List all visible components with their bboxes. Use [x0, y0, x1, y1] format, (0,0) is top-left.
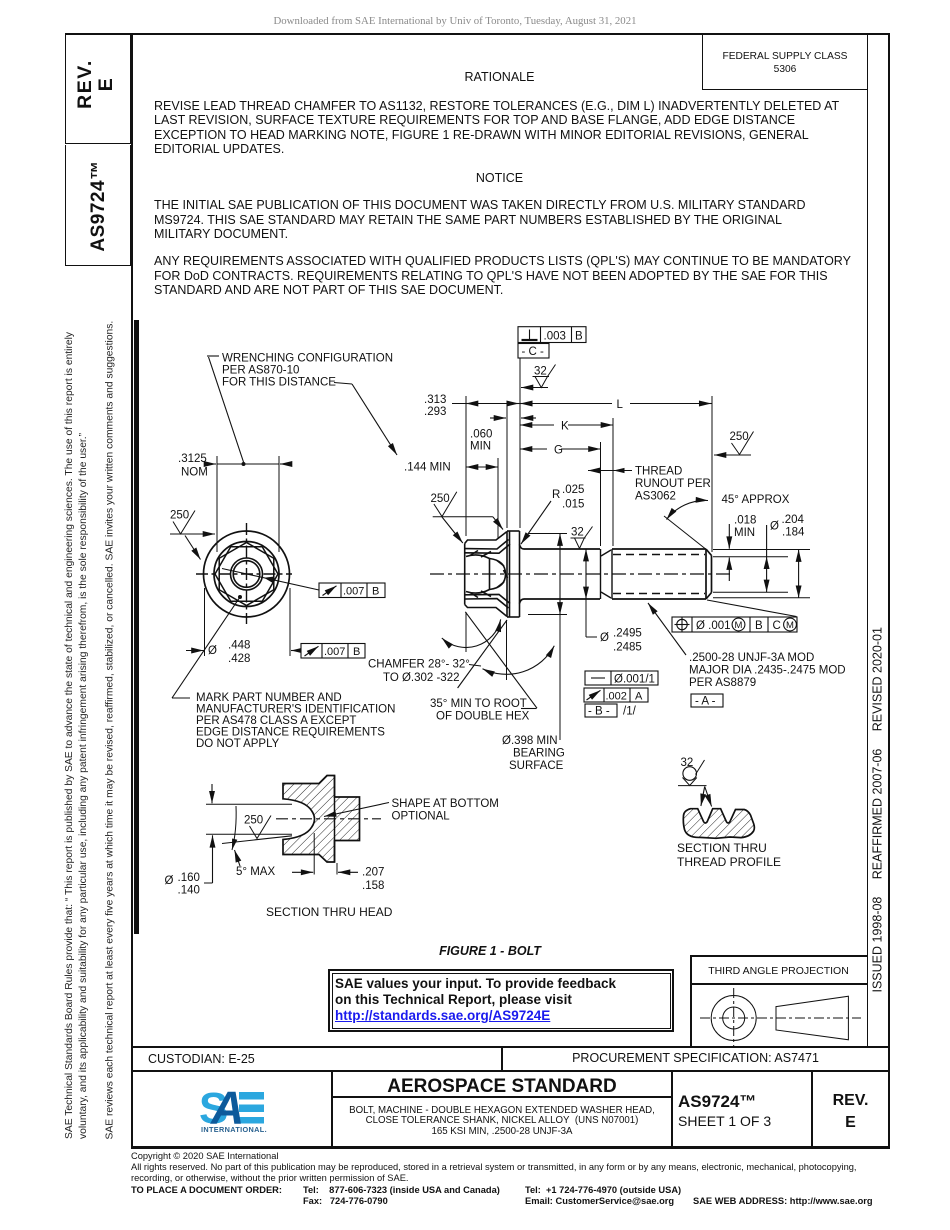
- svg-text:PER AS870-10: PER AS870-10: [222, 365, 299, 377]
- svg-text:MIN: MIN: [734, 527, 755, 539]
- svg-text:250: 250: [244, 815, 263, 827]
- svg-text:35° MIN TO ROOT: 35° MIN TO ROOT: [430, 698, 527, 710]
- svg-text:.2500-28 UNJF-3A MOD: .2500-28 UNJF-3A MOD: [689, 652, 814, 664]
- svg-text:PER AS478 CLASS A EXCEPT: PER AS478 CLASS A EXCEPT: [196, 715, 356, 727]
- svg-text:/1/: /1/: [623, 706, 637, 718]
- svg-text:Ø .001: Ø .001: [696, 620, 731, 632]
- svg-text:THREAD: THREAD: [635, 466, 682, 478]
- svg-text:B: B: [755, 620, 763, 632]
- svg-text:MANUFACTURER'S IDENTIFICATION: MANUFACTURER'S IDENTIFICATION: [196, 704, 395, 716]
- svg-text:.2495: .2495: [613, 628, 642, 640]
- svg-text:EDGE DISTANCE REQUIREMENTS: EDGE DISTANCE REQUIREMENTS: [196, 727, 385, 739]
- svg-text:.3125: .3125: [178, 453, 207, 465]
- svg-text:- B -: - B -: [588, 706, 610, 718]
- svg-text:.448: .448: [228, 640, 250, 652]
- svg-text:RUNOUT PER: RUNOUT PER: [635, 478, 711, 490]
- svg-text:250: 250: [431, 493, 450, 505]
- svg-text:.293: .293: [424, 406, 446, 418]
- svg-text:NOM: NOM: [181, 467, 208, 479]
- svg-text:MIN: MIN: [470, 441, 491, 453]
- svg-text:.015: .015: [562, 499, 584, 511]
- svg-text:.313: .313: [424, 394, 446, 406]
- svg-text:C: C: [773, 620, 781, 632]
- svg-text:32: 32: [534, 366, 547, 378]
- svg-text:M: M: [786, 620, 794, 631]
- svg-text:Ø.001/1: Ø.001/1: [614, 674, 655, 686]
- svg-text:SECTION THRU HEAD: SECTION THRU HEAD: [266, 905, 393, 919]
- svg-text:Ø: Ø: [208, 645, 217, 657]
- svg-text:SURFACE: SURFACE: [509, 760, 564, 772]
- svg-text:A: A: [635, 690, 643, 702]
- svg-text:- C -: - C -: [522, 346, 545, 358]
- svg-text:Ø: Ø: [600, 632, 609, 644]
- svg-text:Ø: Ø: [770, 521, 779, 533]
- svg-text:250: 250: [730, 431, 749, 443]
- svg-text:SHAPE AT BOTTOM: SHAPE AT BOTTOM: [392, 798, 499, 810]
- svg-text:FOR THIS DISTANCE: FOR THIS DISTANCE: [222, 377, 336, 389]
- svg-text:.158: .158: [362, 880, 384, 892]
- svg-text:AS3062: AS3062: [635, 491, 676, 503]
- svg-text:Ø: Ø: [165, 875, 174, 887]
- svg-text:.207: .207: [362, 867, 384, 879]
- svg-text:SECTION THRU: SECTION THRU: [677, 841, 767, 855]
- svg-text:OPTIONAL: OPTIONAL: [392, 811, 451, 823]
- svg-text:.428: .428: [228, 653, 250, 665]
- svg-text:.2485: .2485: [613, 642, 642, 654]
- svg-text:32: 32: [571, 527, 584, 539]
- svg-text:B: B: [353, 646, 360, 658]
- svg-text:.025: .025: [562, 484, 584, 496]
- svg-text:MAJOR DIA .2435-.2475 MOD: MAJOR DIA .2435-.2475 MOD: [689, 665, 846, 677]
- svg-text:K: K: [561, 421, 569, 433]
- svg-text:.003: .003: [544, 331, 566, 343]
- svg-text:R: R: [552, 489, 560, 501]
- svg-text:.007: .007: [343, 585, 364, 597]
- svg-text:.060: .060: [470, 429, 492, 441]
- svg-text:G: G: [554, 445, 563, 457]
- svg-text:M: M: [735, 620, 743, 631]
- svg-text:.204: .204: [782, 514, 805, 526]
- svg-text:TO Ø.302 -322: TO Ø.302 -322: [383, 672, 460, 684]
- svg-text:.160: .160: [178, 872, 200, 884]
- svg-text:PER AS8879: PER AS8879: [689, 677, 756, 689]
- svg-text:OF DOUBLE HEX: OF DOUBLE HEX: [436, 711, 530, 723]
- svg-text:- A -: - A -: [695, 696, 716, 708]
- svg-text:45° APPROX: 45° APPROX: [722, 494, 790, 506]
- svg-text:.184: .184: [782, 527, 805, 539]
- svg-text:THREAD PROFILE: THREAD PROFILE: [677, 855, 781, 869]
- svg-text:.002: .002: [606, 690, 627, 702]
- svg-text:L: L: [617, 399, 624, 411]
- svg-text:DO NOT APPLY: DO NOT APPLY: [196, 738, 280, 750]
- svg-text:BEARING: BEARING: [513, 748, 565, 760]
- svg-text:CHAMFER 28°- 32°: CHAMFER 28°- 32°: [368, 659, 470, 671]
- svg-text:.007: .007: [324, 646, 345, 658]
- svg-text:B: B: [575, 331, 583, 343]
- svg-text:WRENCHING CONFIGURATION: WRENCHING CONFIGURATION: [222, 353, 393, 365]
- svg-text:MARK PART NUMBER AND: MARK PART NUMBER AND: [196, 692, 342, 704]
- svg-text:5° MAX: 5° MAX: [236, 866, 275, 878]
- svg-text:250: 250: [170, 510, 189, 522]
- svg-text:B: B: [372, 585, 379, 597]
- svg-text:.144 MIN: .144 MIN: [404, 462, 451, 474]
- svg-text:Ø.398 MIN: Ø.398 MIN: [502, 735, 558, 747]
- svg-text:.018: .018: [734, 515, 756, 527]
- svg-text:.140: .140: [178, 885, 200, 897]
